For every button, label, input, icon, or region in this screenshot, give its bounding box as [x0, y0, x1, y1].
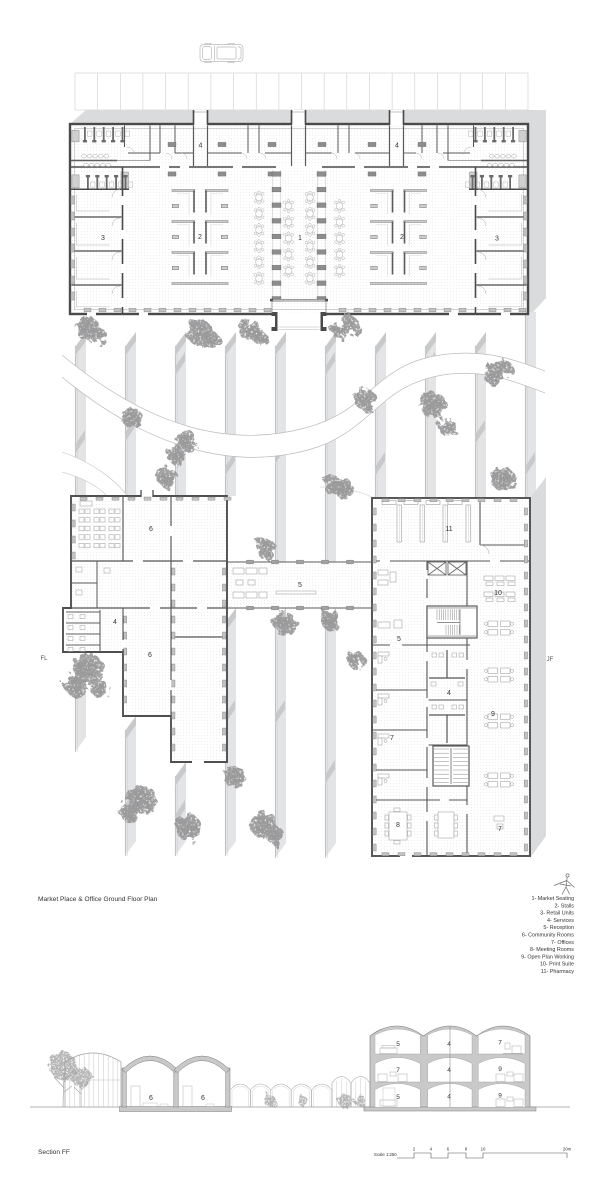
svg-text:6: 6 — [201, 1095, 205, 1102]
svg-text:1: 1 — [298, 235, 302, 242]
svg-text:5- Reception: 5- Reception — [543, 925, 574, 931]
svg-text:Scale 1:250: Scale 1:250 — [374, 1152, 397, 1157]
svg-text:10: 10 — [494, 590, 502, 597]
svg-text:10: 10 — [481, 1147, 486, 1152]
svg-text:JF: JF — [547, 657, 554, 663]
svg-text:4: 4 — [447, 1094, 451, 1101]
svg-text:9: 9 — [498, 1066, 502, 1073]
svg-text:9: 9 — [498, 1093, 502, 1100]
svg-text:6- Community Rooms: 6- Community Rooms — [522, 933, 574, 939]
svg-text:10- Print Suite: 10- Print Suite — [540, 962, 574, 968]
svg-text:7: 7 — [396, 1067, 400, 1074]
svg-text:5: 5 — [397, 636, 401, 643]
svg-text:7: 7 — [498, 826, 502, 833]
svg-text:4- Services: 4- Services — [547, 918, 574, 924]
svg-text:9- Open Plan Working: 9- Open Plan Working — [521, 954, 574, 960]
svg-text:3- Retail Units: 3- Retail Units — [540, 911, 574, 917]
svg-text:2: 2 — [400, 234, 404, 241]
svg-text:8: 8 — [396, 822, 400, 829]
svg-text:5: 5 — [298, 582, 302, 589]
svg-text:4: 4 — [447, 1041, 451, 1048]
svg-text:4: 4 — [395, 143, 399, 150]
svg-text:6: 6 — [148, 652, 152, 659]
svg-text:3: 3 — [101, 235, 105, 242]
svg-text:4: 4 — [447, 1067, 451, 1074]
svg-text:7- Offices: 7- Offices — [551, 940, 574, 946]
svg-text:4: 4 — [113, 619, 117, 626]
svg-text:Section FF: Section FF — [38, 1149, 70, 1156]
svg-text:5: 5 — [396, 1094, 400, 1101]
svg-text:2: 2 — [198, 234, 202, 241]
svg-text:4: 4 — [199, 143, 203, 150]
svg-text:Market Place & Office Ground F: Market Place & Office Ground Floor Plan — [38, 896, 158, 903]
svg-text:3: 3 — [495, 236, 499, 243]
svg-text:7: 7 — [390, 735, 394, 742]
svg-text:2- Stalls: 2- Stalls — [555, 903, 575, 909]
svg-text:8- Meeting Rooms: 8- Meeting Rooms — [530, 947, 574, 953]
svg-text:6: 6 — [149, 1095, 153, 1102]
svg-text:4: 4 — [447, 690, 451, 697]
svg-text:11: 11 — [445, 526, 452, 533]
svg-text:7: 7 — [498, 1040, 502, 1047]
svg-text:1- Market Seating: 1- Market Seating — [531, 896, 574, 902]
svg-text:11- Pharmacy: 11- Pharmacy — [541, 969, 574, 975]
svg-text:FL: FL — [40, 656, 48, 662]
svg-text:6: 6 — [149, 526, 153, 533]
svg-text:5: 5 — [396, 1041, 400, 1048]
svg-text:9: 9 — [491, 711, 495, 718]
svg-text:20m: 20m — [563, 1147, 572, 1152]
